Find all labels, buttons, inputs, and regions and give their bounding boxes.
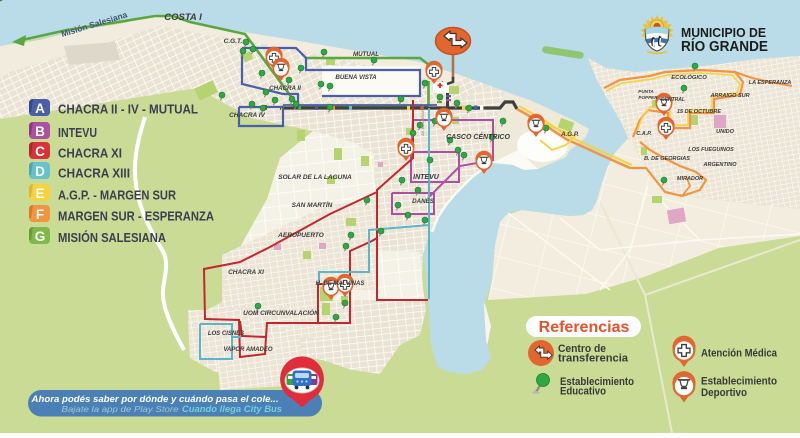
svg-text:CHACRA II - IV - MUTUAL: CHACRA II - IV - MUTUAL bbox=[58, 102, 198, 117]
svg-text:C: C bbox=[35, 144, 45, 159]
svg-text:UOM CIRCUNVALACIÓN: UOM CIRCUNVALACIÓN bbox=[243, 308, 319, 317]
svg-text:CHACRA XIII: CHACRA XIII bbox=[58, 166, 130, 181]
svg-text:A: A bbox=[35, 101, 45, 116]
svg-text:CENTRAL: CENTRAL bbox=[661, 97, 685, 103]
svg-text:MUTUAL: MUTUAL bbox=[353, 51, 379, 58]
svg-text:DANES: DANES bbox=[412, 198, 435, 205]
svg-text:Atención Médica: Atención Médica bbox=[701, 348, 778, 360]
svg-text:COSTA I: COSTA I bbox=[164, 12, 202, 23]
svg-text:Cuando llega City Bus: Cuando llega City Bus bbox=[182, 404, 282, 414]
svg-text:15 DE OCTUBRE: 15 DE OCTUBRE bbox=[677, 109, 721, 115]
svg-text:LOS FUEGUINOS: LOS FUEGUINOS bbox=[688, 147, 734, 153]
svg-text:C.A.P.: C.A.P. bbox=[636, 131, 652, 137]
svg-text:A.G.P. - MARGEN SUR: A.G.P. - MARGEN SUR bbox=[58, 188, 177, 203]
svg-text:C.G.T.: C.G.T. bbox=[224, 38, 243, 45]
svg-text:MIRADOR: MIRADOR bbox=[677, 176, 703, 182]
svg-text:ECOLÓGICO: ECOLÓGICO bbox=[671, 74, 707, 81]
svg-text:F: F bbox=[36, 207, 44, 222]
svg-text:D: D bbox=[35, 164, 45, 179]
svg-text:ARRAIGO SUR: ARRAIGO SUR bbox=[709, 93, 749, 99]
svg-text:CHACRA XI: CHACRA XI bbox=[228, 269, 264, 276]
svg-text:Ahora podés saber por dónde y: Ahora podés saber por dónde y cuándo pas… bbox=[30, 394, 278, 404]
svg-text:LOS CISNES: LOS CISNES bbox=[208, 331, 244, 337]
svg-text:BUENA VISTA: BUENA VISTA bbox=[335, 74, 377, 81]
svg-text:MUNICIPIO DE: MUNICIPIO DE bbox=[681, 26, 766, 40]
svg-text:Referencias: Referencias bbox=[539, 319, 630, 336]
svg-text:INTEVU: INTEVU bbox=[413, 174, 440, 181]
svg-text:H. DE MALVINAS: H. DE MALVINAS bbox=[316, 281, 365, 287]
svg-text:UNIDO: UNIDO bbox=[716, 129, 734, 135]
svg-text:A.G.P.: A.G.P. bbox=[560, 131, 579, 138]
svg-text:Establecimiento: Establecimiento bbox=[701, 376, 777, 388]
svg-text:RÍO GRANDE: RÍO GRANDE bbox=[681, 38, 768, 55]
svg-text:ARGENTINO: ARGENTINO bbox=[703, 162, 738, 168]
svg-text:transferencia: transferencia bbox=[558, 353, 629, 365]
svg-text:CHACRA IV: CHACRA IV bbox=[229, 112, 266, 119]
svg-text:E: E bbox=[35, 186, 44, 201]
svg-text:LA ESPERANZA: LA ESPERANZA bbox=[749, 80, 792, 86]
svg-text:SOLAR DE LA LAGUNA: SOLAR DE LA LAGUNA bbox=[278, 174, 352, 181]
svg-text:PUNTA: PUNTA bbox=[638, 89, 653, 94]
svg-text:SAN MARTÍN: SAN MARTÍN bbox=[292, 200, 333, 209]
svg-text:POPPER: POPPER bbox=[638, 95, 658, 100]
svg-text:Deportivo: Deportivo bbox=[701, 387, 747, 399]
svg-text:CHACRA II: CHACRA II bbox=[269, 85, 301, 92]
svg-text:INTEVU: INTEVU bbox=[58, 125, 97, 140]
svg-text:CHACRA XI: CHACRA XI bbox=[58, 146, 122, 161]
svg-text:Educativo: Educativo bbox=[560, 386, 606, 398]
svg-text:AV. BELGRANO: AV. BELGRANO bbox=[420, 106, 425, 136]
svg-text:B. DE GEORGIAS: B. DE GEORGIAS bbox=[644, 156, 690, 162]
svg-text:VAPOR AMADEO: VAPOR AMADEO bbox=[223, 347, 272, 353]
svg-text:G: G bbox=[35, 229, 46, 244]
svg-text:MISIÓN SALESIANA: MISIÓN SALESIANA bbox=[58, 230, 167, 245]
svg-text:MARGEN SUR - ESPERANZA: MARGEN SUR - ESPERANZA bbox=[58, 209, 215, 224]
svg-text:B: B bbox=[35, 124, 45, 139]
svg-text:AEROPUERTO: AEROPUERTO bbox=[277, 232, 324, 239]
svg-text:CASCO CÉNTRICO: CASCO CÉNTRICO bbox=[446, 132, 510, 141]
svg-text:Bajate la app de Play Store: Bajate la app de Play Store bbox=[62, 404, 179, 414]
